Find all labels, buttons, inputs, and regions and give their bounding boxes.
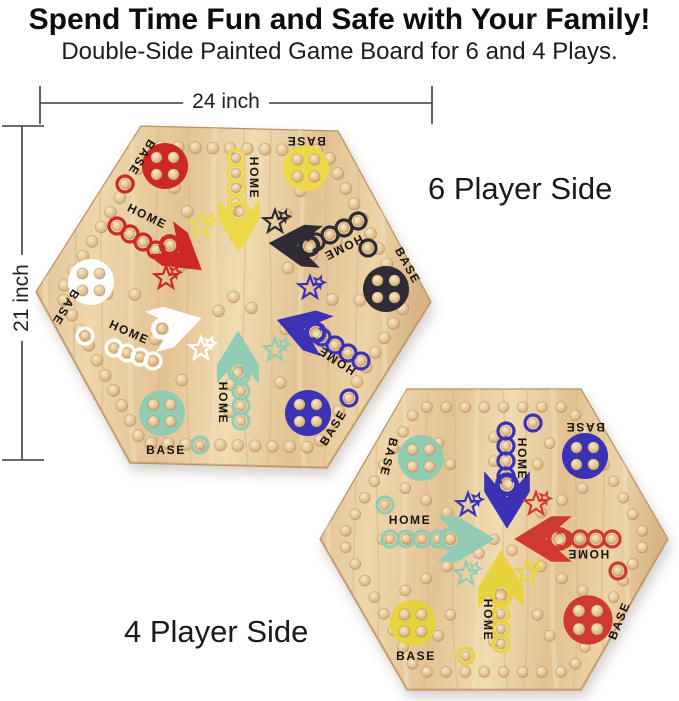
six-yellow-base-label: BASE (286, 134, 326, 148)
four-teal-home-label: HOME (389, 513, 431, 527)
six-yellow-home-label: HOME (247, 157, 261, 199)
base-circle (398, 435, 444, 481)
caption-four-player: 4 Player Side (124, 614, 308, 650)
base-circle (390, 600, 436, 646)
caption-six-player: 6 Player Side (428, 171, 612, 207)
page-title: Spend Time Fun and Safe with Your Family… (0, 3, 679, 37)
base-circle (283, 145, 329, 191)
four-yellow-base-label: BASE (396, 649, 436, 663)
page-subtitle: Double-Side Painted Game Board for 6 and… (0, 38, 679, 66)
four-yellow-home-label: HOME (481, 599, 495, 641)
base-circle (139, 390, 185, 436)
dimension-height-label: 21 inch (10, 255, 34, 341)
four-blue-home-label: HOME (515, 438, 529, 480)
base-circle (562, 433, 608, 479)
board-six-player: BASE HOME BASE HOME BASE HOME (36, 126, 431, 468)
six-teal-base-label: BASE (146, 443, 186, 457)
six-teal-home-label: HOME (216, 382, 230, 424)
four-blue-base-label: BASE (565, 420, 605, 434)
product-image: BASE HOME BASE HOME BASE HOME (0, 0, 679, 701)
base-circle (363, 266, 409, 312)
scene-canvas: BASE HOME BASE HOME BASE HOME (0, 0, 679, 701)
board-four-player: BASE HOME BASE HOME BASE H (320, 389, 668, 690)
dimension-width-label: 24 inch (183, 90, 269, 114)
four-red-home-label: HOME (567, 547, 609, 561)
